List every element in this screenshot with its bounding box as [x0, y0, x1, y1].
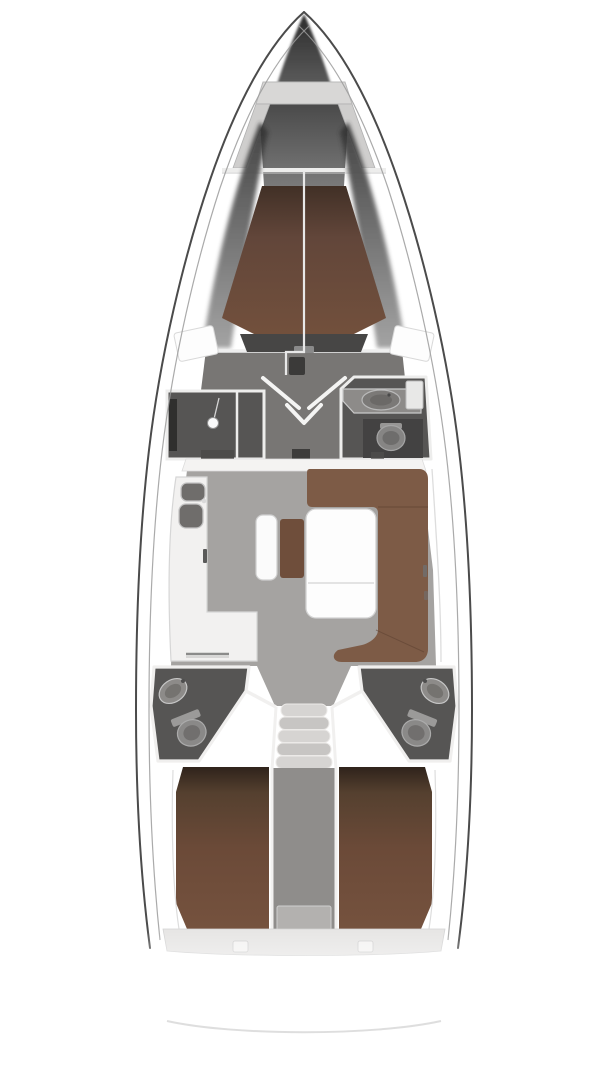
- bulkhead-door-stop-port: [201, 450, 234, 460]
- step-5: [276, 756, 332, 769]
- settee-gap-tick-2: [424, 591, 428, 600]
- galley-sink-2-icon: [179, 504, 203, 528]
- forward-toilet-bowl: [383, 431, 400, 445]
- step-2: [279, 717, 329, 730]
- aft-head-starboard-tap: [423, 679, 427, 683]
- yacht-floor-plan: [0, 0, 608, 1080]
- step-3: [278, 730, 330, 743]
- forward-head: [341, 377, 431, 459]
- anchor-locker-bar: [256, 82, 352, 104]
- shower-compartment: [167, 391, 264, 459]
- companionway-stairs: [276, 704, 332, 769]
- yacht-floor-plan-page: [0, 0, 608, 1080]
- forward-head-cabinet: [406, 381, 423, 409]
- center-bench-cushion: [280, 519, 304, 578]
- mast-post: [289, 357, 305, 375]
- center-bench-seat: [256, 515, 277, 580]
- bulkhead-door-stop-center: [292, 449, 310, 460]
- step-1: [281, 704, 327, 717]
- aft-cabin-starboard-berth: [339, 767, 432, 929]
- forward-head-tap: [387, 393, 390, 396]
- aft-head-port-tap: [181, 679, 185, 683]
- dinette-table: [306, 509, 376, 618]
- galley-fiddle-notch: [203, 549, 207, 563]
- step-4: [277, 743, 331, 756]
- galley-sink-1-icon: [181, 483, 205, 501]
- settee-gap-tick-1: [423, 565, 427, 577]
- shower-head-icon: [208, 418, 219, 429]
- shower-locker-dark: [169, 399, 177, 451]
- aft-cabin-port-berth: [176, 767, 269, 929]
- transom-fade: [110, 928, 498, 1080]
- galley-faucet: [202, 499, 207, 504]
